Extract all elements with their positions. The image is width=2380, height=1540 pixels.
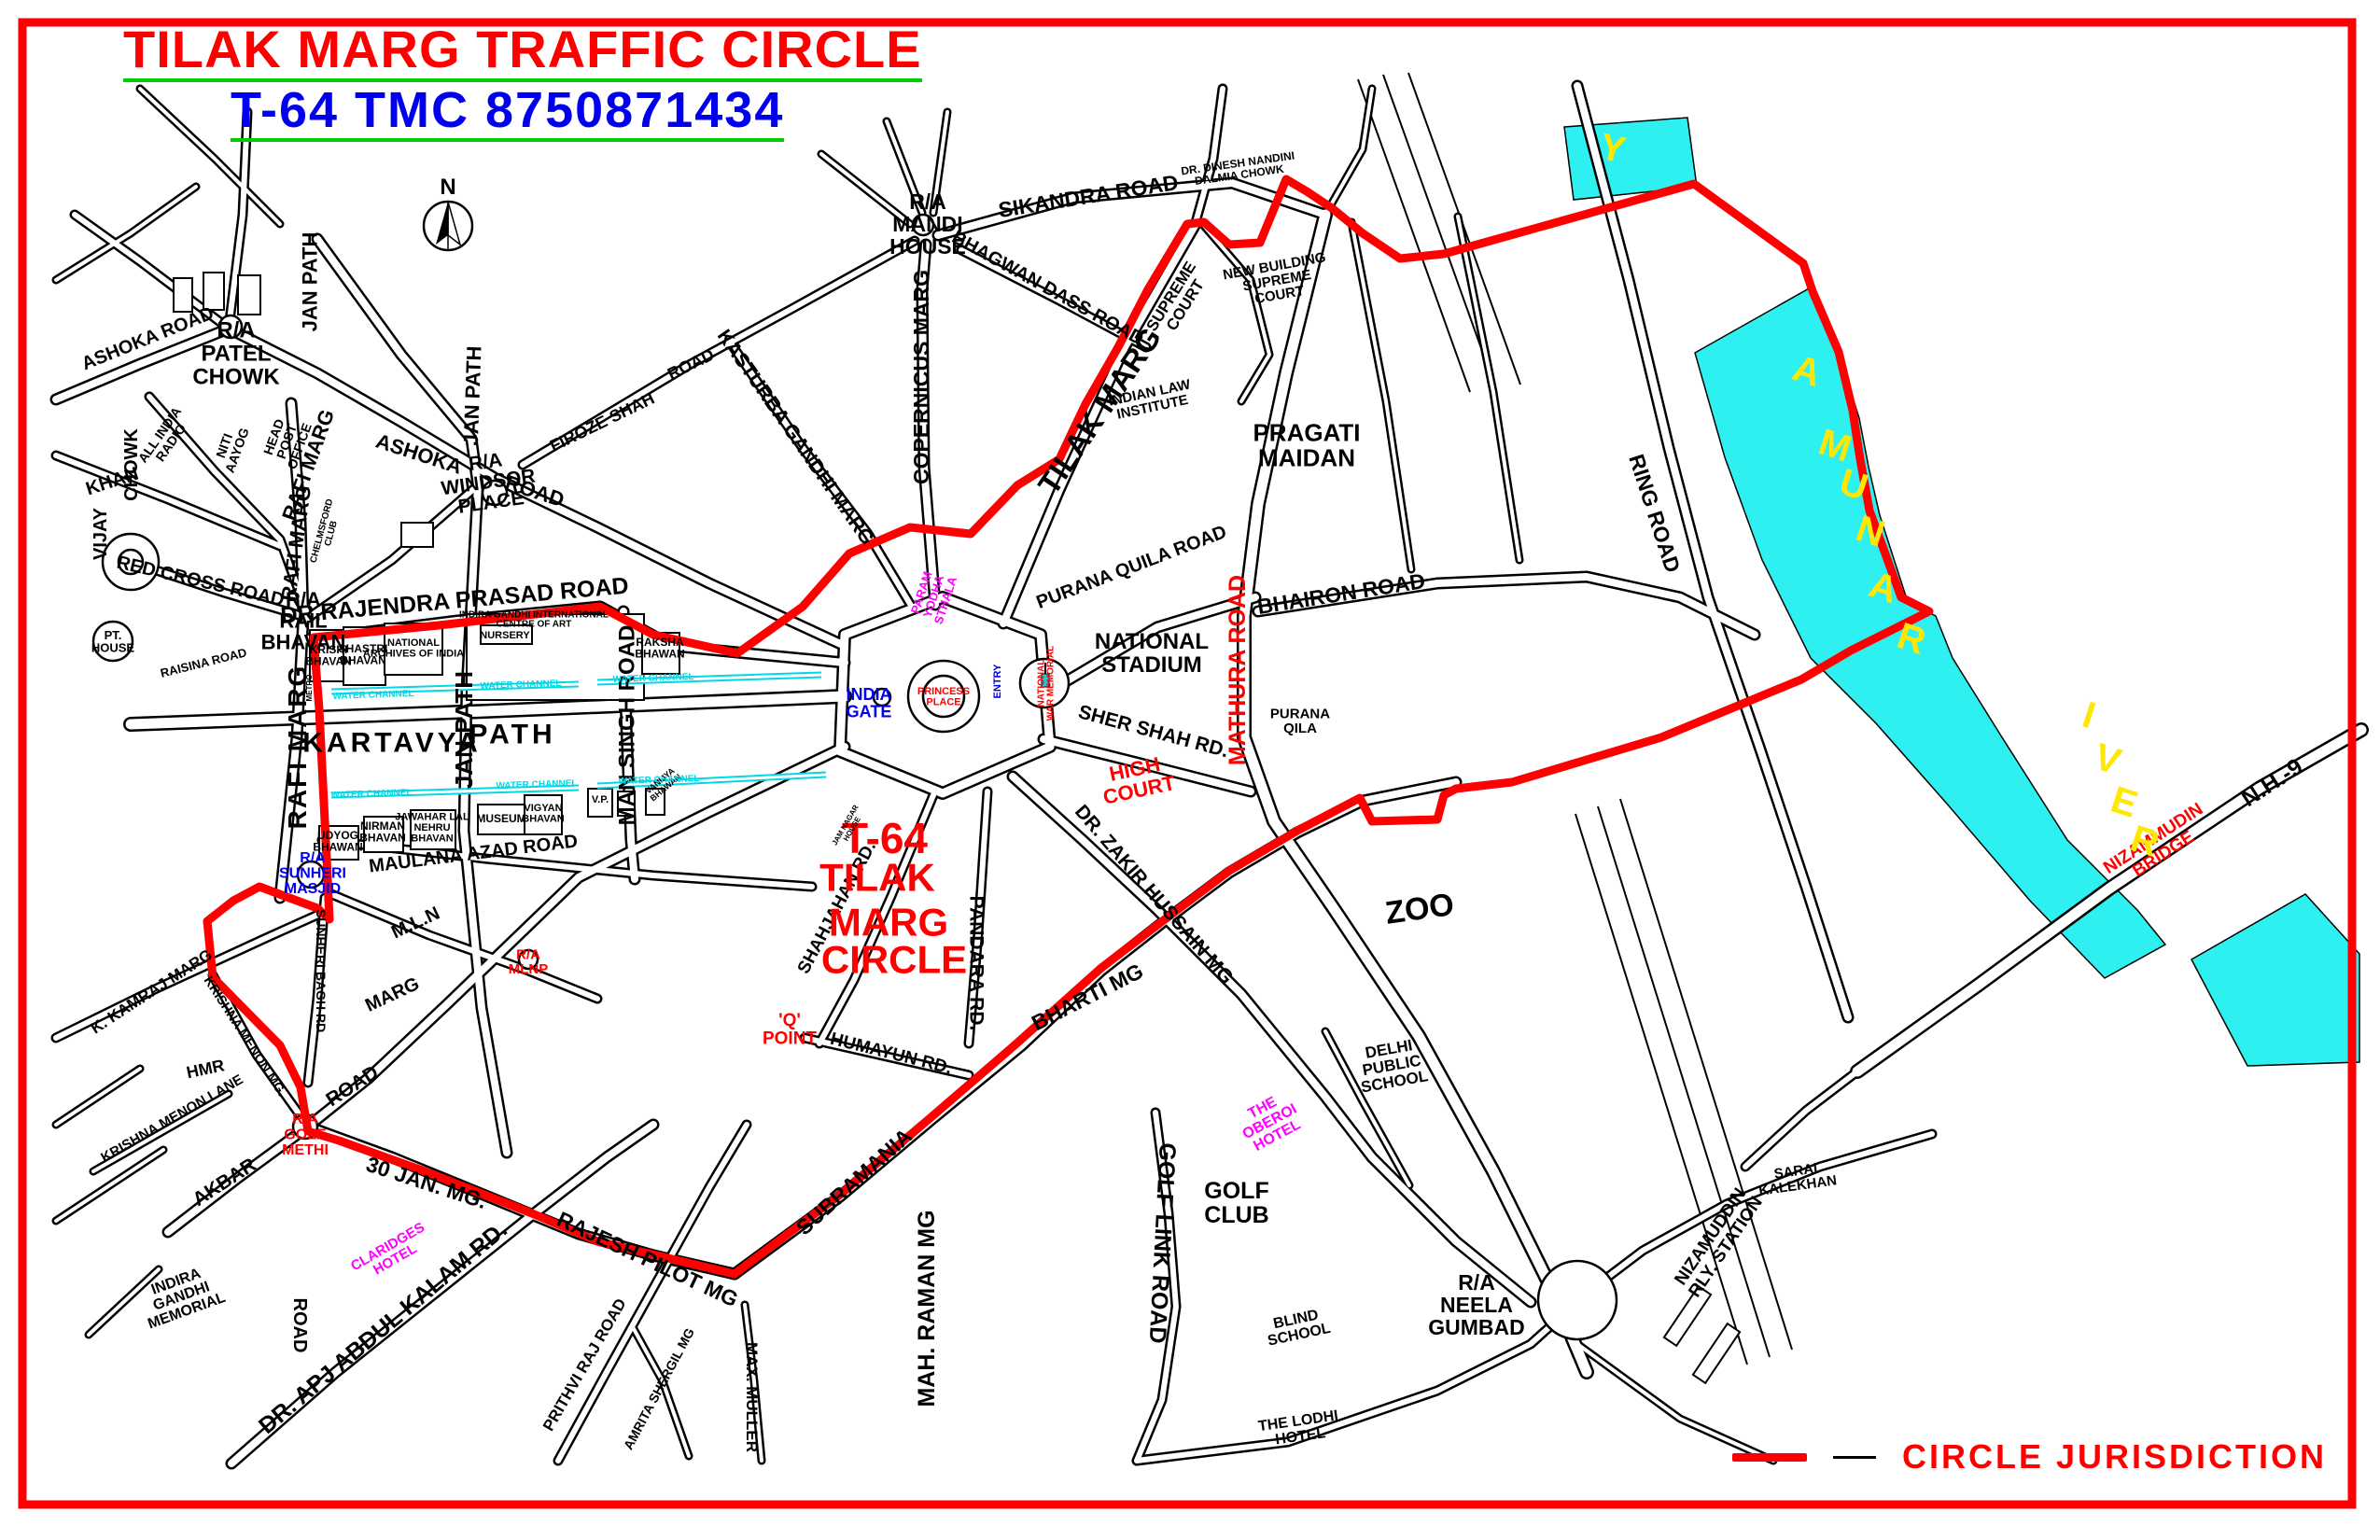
map-label-dr-zakir-hussain-mg: DR. ZAKIR HUSSAIN MG: [1071, 801, 1238, 988]
map-label-jan-path: JAN PATH: [459, 345, 486, 446]
roundabout-circle: [1538, 1261, 1617, 1339]
compass-north-label: N: [440, 175, 455, 200]
legend-label: CIRCLE JURISDICTION: [1902, 1437, 2327, 1477]
map-label-vijay: VIJAY: [91, 507, 111, 560]
map-label-udyog-bhawan: UDYOGBHAWAN: [313, 829, 362, 853]
map-label-national-stadium: NATIONALSTADIUM: [1095, 629, 1209, 678]
map-label-nursery: NURSERY: [480, 630, 530, 641]
river-letter: I: [2078, 694, 2100, 736]
map-label-hmr: HMR: [185, 1056, 226, 1082]
map-label-jan-path: JAN PATH: [299, 232, 322, 332]
map-label-sunheri-bagh-rd: SUNHERI BAGH RD.: [314, 909, 329, 1036]
map-label-raisina-road: RAISINA ROAD: [159, 645, 248, 680]
legend-road-line-icon: [1833, 1456, 1876, 1459]
map-label-zoo: ZOO: [1383, 887, 1456, 931]
map-label-k-kamraj-marg: K. KAMRAJ MARG: [88, 945, 216, 1037]
map-label-bhagwan-dass-road: BHAGWAN DASS ROAD: [948, 227, 1147, 349]
map-label-raksha-bhawan: RAKSHABHAWAN: [635, 636, 684, 660]
map-label-amrita-shergil-mg: AMRITA SHERGIL MG: [621, 1325, 697, 1452]
map-label-bharti-mg: BHARTI MG: [1028, 959, 1147, 1035]
map-label-akbar: AKBAR: [189, 1154, 259, 1211]
map-label-circle: CIRCLE: [821, 938, 967, 982]
map-label-mathura-road: MATHURA ROAD: [1225, 575, 1251, 765]
map-label-golf-club: GOLFCLUB: [1204, 1178, 1268, 1228]
map-canvas: ASHOKA ROADR/APATELCHOWKALL INDIARADIONI…: [0, 0, 2380, 1540]
river-letter: V: [2090, 736, 2126, 783]
map-subtitle: T-64 TMC 8750871434: [231, 84, 784, 142]
map-label-chelmsford-club: CHELMSFORDCLUB: [308, 497, 344, 567]
map-label-road: ROAD: [665, 345, 717, 384]
map-label-param-yodha-sthala: PARAMYODHASTHALA: [907, 567, 959, 626]
map-label-purana-quila-road: PURANA QUILA ROAD: [1033, 522, 1229, 613]
map-label-road: ROAD: [289, 1298, 310, 1353]
map-label-tilak: TILAK: [819, 856, 935, 900]
map-label-firoze-shah: FIROZE SHAH: [547, 389, 657, 455]
map-label-humayun-rd: HUMAYUN RD.: [828, 1029, 953, 1079]
map-label-the-oberoi-hotel: THEOBEROIHOTEL: [1233, 1087, 1307, 1156]
map-label-kasturba-gandhi-marg: KASTURBA GANDHI MARG: [713, 326, 878, 549]
building-block: [174, 278, 192, 312]
river-letter: E: [2107, 779, 2143, 826]
map-label-water-channel: WATER CHANNEL: [618, 774, 699, 787]
building-block: [1693, 1323, 1740, 1383]
map-label-pandara-rd: PANDARA RD.: [966, 896, 987, 1031]
yamuna-river: [1564, 118, 2359, 1066]
map-label-road: ROAD: [322, 1061, 382, 1111]
map-label-man-singh-road: MAN SINGH ROAD: [614, 625, 639, 826]
map-label-water-channel: WATER CHANNEL: [332, 689, 413, 702]
map-label-max-muller: MAX. MULLER: [743, 1342, 761, 1452]
map-label-path: PATH: [469, 720, 555, 750]
map-label-vigyan-bhavan: VIGYANBHAVAN: [522, 803, 564, 824]
railway-lines: [1358, 73, 1792, 1365]
map-label-subramania: SUBRAMANIA: [791, 1124, 917, 1239]
map-label-nizamuddin-rly-station: NIZAMUDDINRLY. STATION: [1670, 1183, 1767, 1301]
north-compass-icon: N: [424, 175, 472, 250]
map-label-bhairon-road: BHAIRON ROAD: [1255, 568, 1426, 619]
map-label-entry: ENTRY: [992, 664, 1003, 699]
map-label-water-channel: WATER CHANNEL: [612, 672, 693, 685]
map-label-v-p: V.P.: [592, 794, 609, 805]
map-label-sikandra-road: SIKANDRA ROAD: [997, 170, 1180, 222]
map-label-marg: MARG: [362, 973, 423, 1016]
map-label-claridges-hotel: CLARIDGESHOTEL: [348, 1219, 435, 1286]
map-label-chowk: CHOWK: [121, 428, 142, 501]
map-label-purana-qila: PURANAQILA: [1270, 706, 1330, 736]
map-label-copernicus-marg: COPERNICUS MARG: [909, 270, 933, 484]
delhi-traffic-circle-map: ASHOKA ROADR/APATELCHOWKALL INDIARADIONI…: [0, 0, 2380, 1540]
map-label-metro: METRO: [305, 675, 314, 702]
map-label-water-channel: WATER CHANNEL: [330, 788, 412, 801]
title-block: TILAK MARG TRAFFIC CIRCLE T-64 TMC 87508…: [123, 22, 922, 142]
building-block: [401, 523, 433, 547]
map-label-r-a-patel-chowk: R/APATELCHOWK: [192, 317, 280, 389]
map-label-r-a-mlnp: R/AMLNP: [509, 946, 549, 977]
map-label-mah-raman-mg: MAH. RAMAN MG: [914, 1210, 940, 1407]
map-title: TILAK MARG TRAFFIC CIRCLE: [123, 22, 922, 82]
map-label-india-gate: INDIAGATE: [847, 685, 892, 721]
map-label-q-point: 'Q'POINT: [763, 1011, 817, 1049]
map-label-museum: MUSEUM: [476, 812, 525, 825]
map-label-nirman-bhavan: NIRMANBHAVAN: [359, 819, 406, 844]
map-label-jan-path: JAN PATH: [450, 671, 478, 789]
map-label-30-jan-mg: 30 JAN. MG.: [363, 1152, 490, 1213]
map-label-indira-gandhi-memorial: INDIRAGANDHIMEMORIAL: [135, 1260, 228, 1332]
legend: CIRCLE JURISDICTION: [1732, 1437, 2327, 1477]
map-label-blind-school: BLINDSCHOOL: [1263, 1305, 1332, 1349]
building-block: [238, 275, 260, 315]
map-label-n-h-9: N.H.-9: [2236, 753, 2307, 812]
map-label-pragati-maidan: PRAGATIMAIDAN: [1253, 419, 1360, 472]
legend-jurisdiction-line-icon: [1732, 1453, 1807, 1462]
